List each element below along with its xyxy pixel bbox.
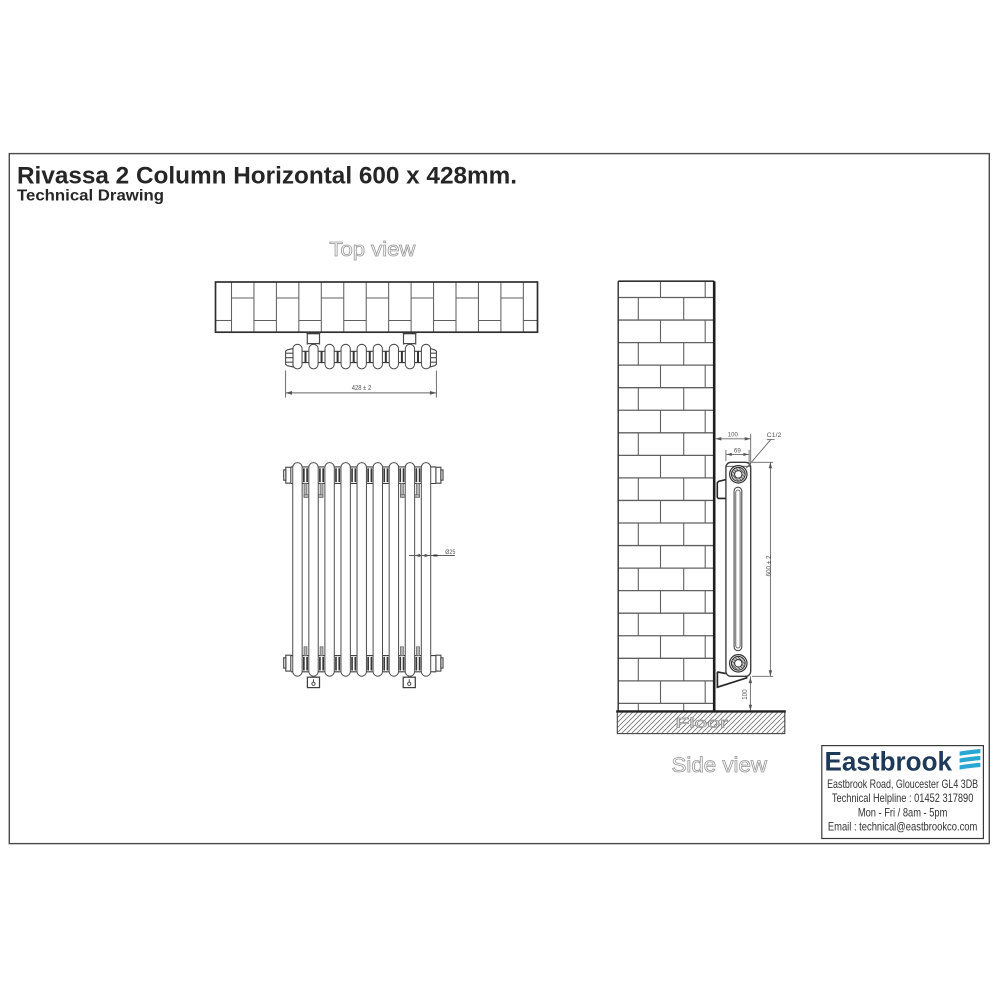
svg-text:69: 69 bbox=[734, 448, 741, 455]
svg-text:Technical Helpline : 01452 317: Technical Helpline : 01452 317890 bbox=[832, 792, 974, 805]
svg-text:Rivassa 2 Column Horizontal 60: Rivassa 2 Column Horizontal 600 x 428mm. bbox=[17, 163, 517, 190]
svg-text:428 ± 2: 428 ± 2 bbox=[352, 383, 372, 392]
svg-text:Ø25: Ø25 bbox=[445, 549, 455, 556]
svg-text:Side view: Side view bbox=[672, 754, 768, 777]
svg-text:Eastbrook Road, Gloucester GL4: Eastbrook Road, Gloucester GL4 3DB bbox=[827, 778, 978, 791]
svg-text:600 ± 2: 600 ± 2 bbox=[766, 555, 773, 576]
svg-text:Email : technical@eastbrookco.: Email : technical@eastbrookco.com bbox=[828, 821, 978, 834]
svg-text:100: 100 bbox=[742, 689, 749, 700]
svg-text:Eastbrook: Eastbrook bbox=[825, 746, 953, 776]
svg-text:Technical Drawing: Technical Drawing bbox=[17, 188, 164, 205]
svg-text:C1/2: C1/2 bbox=[767, 432, 782, 439]
svg-text:Floor: Floor bbox=[675, 714, 728, 730]
svg-text:100: 100 bbox=[728, 432, 738, 439]
svg-text:Mon - Fri / 8am - 5pm: Mon - Fri / 8am - 5pm bbox=[858, 806, 948, 819]
svg-text:Top view: Top view bbox=[329, 238, 415, 261]
